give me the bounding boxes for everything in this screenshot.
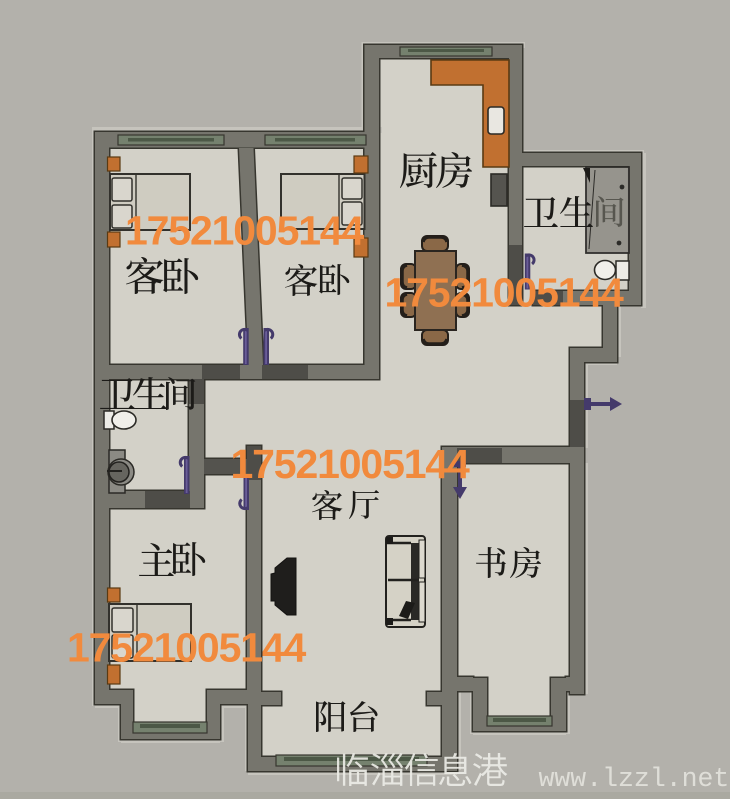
svg-text:www.lzzl.net: www.lzzl.net xyxy=(539,764,730,794)
svg-text:17521005144: 17521005144 xyxy=(385,269,625,315)
svg-text:17521005144: 17521005144 xyxy=(231,441,471,487)
svg-text:17521005144: 17521005144 xyxy=(125,208,365,254)
svg-text:17521005144: 17521005144 xyxy=(67,625,307,671)
